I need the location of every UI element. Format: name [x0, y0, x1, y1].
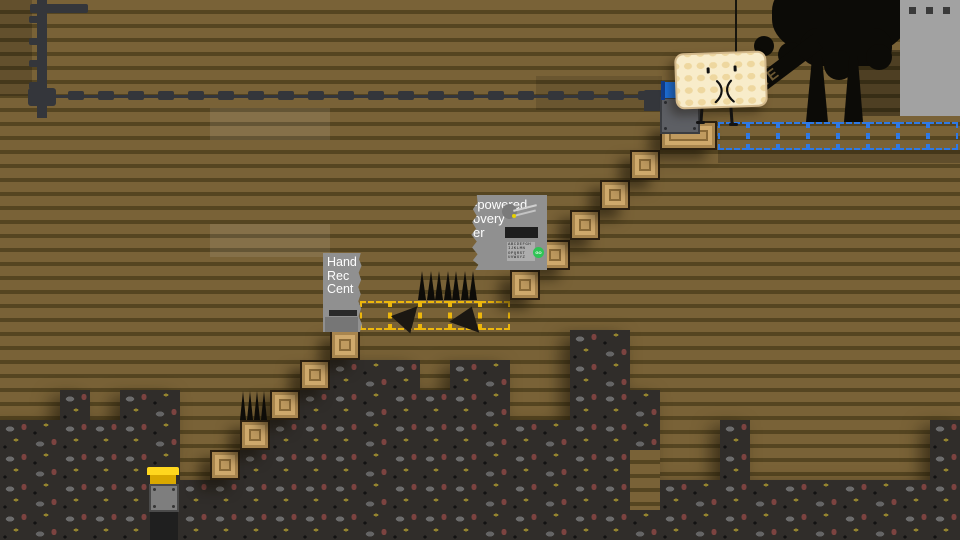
pressure-button-base	[150, 475, 176, 484]
wood-shade-patch	[0, 0, 32, 96]
panel-dot	[909, 7, 916, 14]
ghost-block-outline	[420, 301, 450, 330]
keypad-row: UVWXYZ	[508, 256, 534, 260]
character-foot	[729, 123, 738, 126]
ghost-block-outline	[868, 122, 898, 150]
pressure-button-cap[interactable]	[147, 467, 179, 475]
vine	[735, 0, 737, 54]
crate	[240, 420, 270, 450]
rope-dash	[338, 91, 354, 100]
ghost-block-outline	[928, 122, 958, 150]
spike	[427, 271, 435, 300]
ghost-block-outline	[898, 122, 928, 150]
rivet	[153, 488, 156, 491]
crate	[300, 360, 330, 390]
ghost-block-outline	[778, 122, 808, 150]
game-scene: EE Hand Rec Cent -powered overy er ABCDE…	[0, 0, 960, 540]
crate	[210, 450, 240, 480]
dirt-block	[300, 390, 330, 540]
dirt-block	[0, 420, 60, 540]
dirt-block	[90, 420, 120, 540]
crate	[630, 150, 660, 180]
crate	[330, 330, 360, 360]
rope-dash	[278, 91, 294, 100]
spike	[452, 271, 460, 300]
pole	[37, 0, 47, 118]
dirt-block	[720, 420, 750, 540]
machine-keypad[interactable]: ABCDEFGH IJKLMN OPQRST UVWXYZ	[507, 242, 535, 261]
pole-top-bar	[30, 4, 88, 13]
rope-dash	[368, 91, 384, 100]
dirt-block	[270, 420, 300, 540]
dirt-block	[60, 390, 90, 540]
spike	[261, 391, 267, 420]
rivet	[172, 505, 175, 508]
tree-canopy-lobe	[866, 44, 892, 70]
rope-dash	[518, 91, 534, 100]
ghost-block-outline	[748, 122, 778, 150]
spike	[444, 271, 452, 300]
ghost-block-outline	[390, 301, 420, 330]
dirt-block	[330, 360, 420, 540]
rope-dash	[128, 91, 144, 100]
rope-dash	[608, 91, 624, 100]
panel-dot	[943, 7, 950, 14]
logo-dot	[512, 214, 516, 218]
rope-dash	[188, 91, 204, 100]
wood-notch	[630, 450, 660, 510]
crate	[270, 390, 300, 420]
hand-powered-recovery-center: -powered overy er ABCDEFGH IJKLMN OPQRST…	[469, 195, 547, 270]
dirt-block	[600, 390, 660, 540]
ghost-block-outline	[450, 301, 480, 330]
rivet	[153, 505, 156, 508]
rope-dash	[428, 91, 444, 100]
eye	[707, 67, 710, 73]
rope-dash	[488, 91, 504, 100]
crate	[600, 180, 630, 210]
dirt-block	[570, 330, 630, 540]
rope-dash	[398, 91, 414, 100]
go-button[interactable]: GO	[533, 247, 544, 258]
recovery-machine-torn-piece: Hand Rec Cent	[323, 253, 364, 332]
machine-bottom-panel	[325, 317, 358, 332]
ghost-block-outline	[360, 301, 390, 330]
machine-text: Hand	[327, 256, 364, 270]
wall-panel	[900, 0, 960, 116]
wood-shade-patch	[210, 224, 330, 257]
rivet	[693, 127, 696, 130]
crate	[570, 210, 600, 240]
grimace-mouth	[710, 79, 739, 103]
machine-text: Rec	[327, 270, 364, 284]
waffle-character	[674, 50, 768, 109]
rope-dash	[218, 91, 234, 100]
dirt-block	[180, 480, 210, 540]
dirt-block	[210, 480, 240, 540]
pole-rung	[29, 82, 41, 89]
rope-dash	[548, 91, 564, 100]
rivet	[172, 488, 175, 491]
dirt-block	[930, 420, 960, 540]
rope-dash	[98, 91, 114, 100]
machine-slot	[329, 310, 357, 316]
spike	[418, 271, 426, 300]
machine-text: Cent	[327, 283, 364, 297]
rope-dash	[638, 91, 654, 100]
crate	[510, 270, 540, 300]
rope-dash	[458, 91, 474, 100]
fallen-spike	[449, 301, 487, 333]
eye	[734, 65, 737, 71]
rivet	[664, 127, 667, 130]
pole-rung	[29, 16, 41, 23]
spike	[435, 271, 443, 300]
dirt-block	[240, 450, 270, 540]
pole-cross-joint	[28, 88, 56, 106]
rope-dash	[68, 91, 84, 100]
ghost-block-outline	[480, 301, 510, 330]
character-foot	[696, 121, 705, 124]
spike	[254, 391, 260, 420]
spike	[247, 391, 253, 420]
dirt-block	[450, 360, 510, 540]
rope-line	[38, 95, 656, 98]
pole-rung	[29, 38, 41, 45]
ghost-block-outline	[808, 122, 838, 150]
spike	[461, 271, 469, 300]
panel-dot	[926, 7, 933, 14]
button-shaft	[150, 512, 178, 540]
rope-dash	[38, 91, 54, 100]
rope-dash	[308, 91, 324, 100]
dirt-block	[510, 420, 570, 540]
dirt-block	[420, 390, 450, 540]
rope-dash	[248, 91, 264, 100]
spike	[469, 271, 477, 300]
machine-display-slot	[505, 227, 538, 238]
ghost-block-outline	[718, 122, 748, 150]
wood-shade-patch	[210, 108, 330, 140]
pole-rung	[29, 60, 41, 67]
dirt-block	[660, 480, 930, 540]
spike	[240, 391, 246, 420]
fallen-spike	[391, 298, 427, 334]
rope-dash	[158, 91, 174, 100]
ghost-block-outline	[838, 122, 868, 150]
rope-dash	[578, 91, 594, 100]
button-mount-block	[149, 484, 179, 512]
wood-shade-patch	[718, 150, 960, 163]
rivet	[664, 101, 667, 104]
